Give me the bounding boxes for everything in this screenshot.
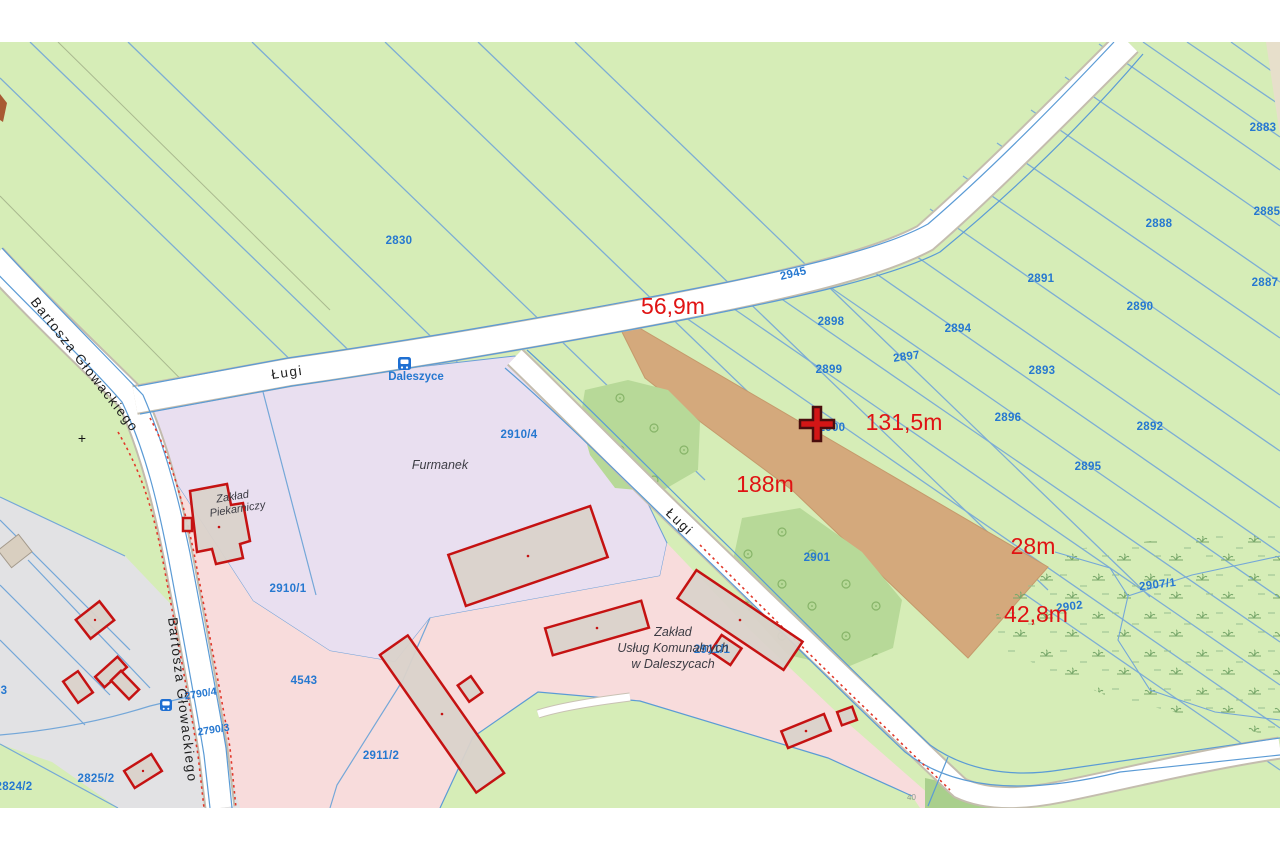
parcel-label-2891: 2891 [1028,273,1055,285]
place-label-daleszyce: Daleszyce [388,371,444,383]
parcel-label-2830: 2830 [386,235,413,247]
parcel-label-2901: 2901 [804,552,831,564]
parcel-label-cut: 3 [1,685,8,697]
bottom-margin [0,808,1280,847]
land-use-code: 40 [907,793,916,802]
parcel-label-2892: 2892 [1137,421,1164,433]
parcel-label-2896: 2896 [995,412,1022,424]
measurement-56-9m: 56,9m [641,293,705,319]
parcel-label-2888: 2888 [1146,218,1173,230]
parcel-label-2885: 2885 [1254,206,1280,218]
measurement-188m: 188m [736,471,794,497]
parcel-label-2895: 2895 [1075,461,1102,473]
parcel-label-2910-1: 2910/1 [270,583,307,595]
building-bakery-annex [183,518,192,531]
map-svg: 2830 2945 2883 2885 2888 2887 2891 2898 … [0,0,1280,847]
landmark-label-furmanek: Furmanek [412,458,469,472]
parcel-label-2883: 2883 [1250,122,1277,134]
parcel-label-2893: 2893 [1029,365,1056,377]
landmark-label-zuk-2: Usług Komunalnych [617,641,728,655]
bus-stop-icon-glowackiego[interactable] [160,699,172,711]
parcel-label-2898: 2898 [818,316,845,328]
measurement-42-8m: 42,8m [1004,601,1068,627]
bus-stop-icon-daleszyce[interactable] [398,357,411,370]
landmark-label-zuk-1: Zakład [653,625,693,639]
parcel-label-2890: 2890 [1127,301,1154,313]
measurement-131-5m: 131,5m [866,409,943,435]
landmark-label-zuk-3: w Daleszycach [631,657,714,671]
parcel-label-2910-4: 2910/4 [501,429,538,441]
parcel-label-4543: 4543 [291,675,318,687]
survey-cross-symbol: + [78,430,86,446]
parcel-label-2825-2: 2825/2 [78,773,115,785]
cadastral-map-canvas[interactable]: 2830 2945 2883 2885 2888 2887 2891 2898 … [0,0,1280,847]
top-margin [0,0,1280,42]
parcel-label-2824-2: 2824/2 [0,781,32,793]
parcel-label-2911-2: 2911/2 [363,750,399,762]
parcel-label-2894: 2894 [945,323,972,335]
parcel-label-2887: 2887 [1252,277,1279,289]
parcel-label-2899: 2899 [816,364,843,376]
measurement-28m: 28m [1011,533,1056,559]
